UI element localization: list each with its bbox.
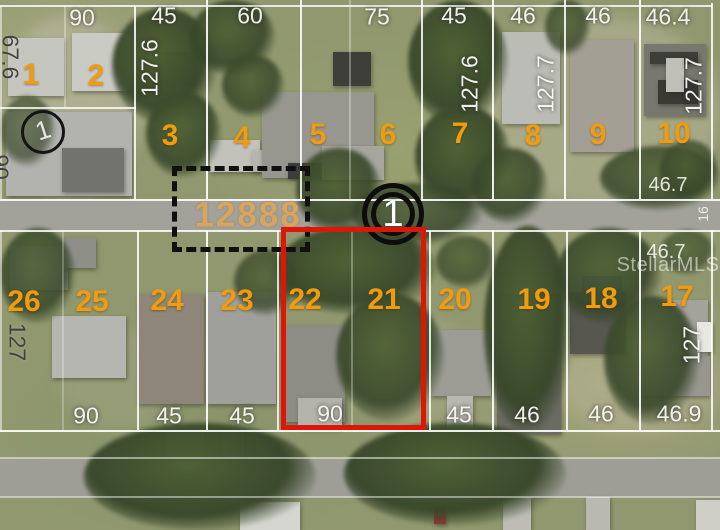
highlighted-parcel-outline	[281, 227, 426, 430]
watermark: StellarMLS	[617, 255, 720, 275]
aerial-parcel-map: 90 45 60 75 45 46 46 46.4 67.6 127.6 127…	[0, 0, 720, 530]
annotation-layer: 12888 1 1 StellarMLS	[0, 0, 720, 530]
